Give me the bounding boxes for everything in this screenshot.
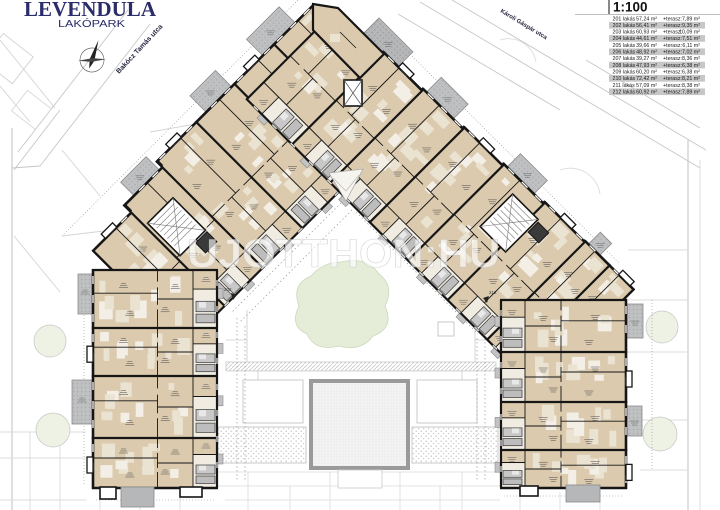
svg-text:201 lakás: 201 lakás: [613, 16, 636, 22]
svg-text:6,38 m²: 6,38 m²: [682, 63, 700, 69]
svg-text:60,20 m²: 60,20 m²: [636, 70, 657, 76]
svg-text:60,93 m²: 60,93 m²: [636, 30, 657, 36]
svg-text:44,61 m²: 44,61 m²: [636, 36, 657, 42]
svg-text:LAKÓPARK: LAKÓPARK: [58, 17, 125, 30]
svg-text:+terasz:: +terasz:: [663, 36, 682, 42]
svg-text:56,41 m²: 56,41 m²: [636, 23, 657, 29]
svg-text:209 lakás: 209 lakás: [613, 70, 636, 76]
svg-text:39,66 m²: 39,66 m²: [636, 43, 657, 49]
svg-text:202 lakás: 202 lakás: [613, 23, 636, 29]
svg-text:8,36 m²: 8,36 m²: [682, 56, 700, 62]
svg-text:47,93 m²: 47,93 m²: [636, 63, 657, 69]
svg-text:1:100: 1:100: [613, 0, 648, 15]
svg-text:7,02 m²: 7,02 m²: [682, 50, 700, 56]
svg-text:57,09 m²: 57,09 m²: [636, 83, 657, 89]
svg-text:UJOTTHON:HU: UJOTTHON:HU: [187, 232, 500, 276]
svg-text:210 lakás: 210 lakás: [613, 76, 636, 82]
svg-text:57,24 m²: 57,24 m²: [636, 16, 657, 22]
svg-text:6,11 m²: 6,11 m²: [682, 43, 700, 49]
svg-text:+terasz:: +terasz:: [663, 70, 682, 76]
svg-text:204 lakás: 204 lakás: [613, 36, 636, 42]
svg-text:206 lakás: 206 lakás: [613, 50, 636, 56]
svg-text:6,38 m²: 6,38 m²: [682, 70, 700, 76]
svg-text:39,27 m²: 39,27 m²: [636, 56, 657, 62]
svg-text:+terasz:: +terasz:: [663, 83, 682, 89]
svg-text:205 lakás: 205 lakás: [613, 43, 636, 49]
svg-text:10,09 m²: 10,09 m²: [679, 30, 700, 36]
svg-text:60,92 m²: 60,92 m²: [636, 90, 657, 96]
svg-text:+terasz:: +terasz:: [663, 63, 682, 69]
svg-text:207 lakás: 207 lakás: [613, 56, 636, 62]
svg-text:7,89 m²: 7,89 m²: [682, 16, 700, 22]
svg-text:7,51 m²: 7,51 m²: [682, 36, 700, 42]
svg-text:9,35 m²: 9,35 m²: [682, 23, 700, 29]
svg-text:+terasz:: +terasz:: [663, 90, 682, 96]
svg-text:+terasz:: +terasz:: [663, 23, 682, 29]
svg-text:203 lakás: 203 lakás: [613, 30, 636, 36]
svg-text:208 lakás: 208 lakás: [613, 63, 636, 69]
svg-text:8,38 m²: 8,38 m²: [682, 83, 700, 89]
svg-text:202: 202: [224, 287, 232, 292]
svg-text:+terasz:: +terasz:: [663, 16, 682, 22]
svg-text:72,42 m²: 72,42 m²: [636, 76, 657, 82]
svg-text:48,92 m²: 48,92 m²: [636, 50, 657, 56]
svg-text:212: 212: [489, 290, 497, 295]
svg-text:8,21 m²: 8,21 m²: [682, 76, 700, 82]
svg-text:LEVENDULA: LEVENDULA: [24, 0, 157, 21]
svg-text:211 lakás: 211 lakás: [613, 83, 636, 89]
svg-text:+terasz:: +terasz:: [663, 56, 682, 62]
svg-text:+terasz:: +terasz:: [663, 43, 682, 49]
svg-text:+terasz:: +terasz:: [663, 50, 682, 56]
svg-text:+terasz:: +terasz:: [663, 76, 682, 82]
svg-text:7,89 m²: 7,89 m²: [682, 90, 700, 96]
svg-text:212 lakás: 212 lakás: [613, 90, 636, 96]
